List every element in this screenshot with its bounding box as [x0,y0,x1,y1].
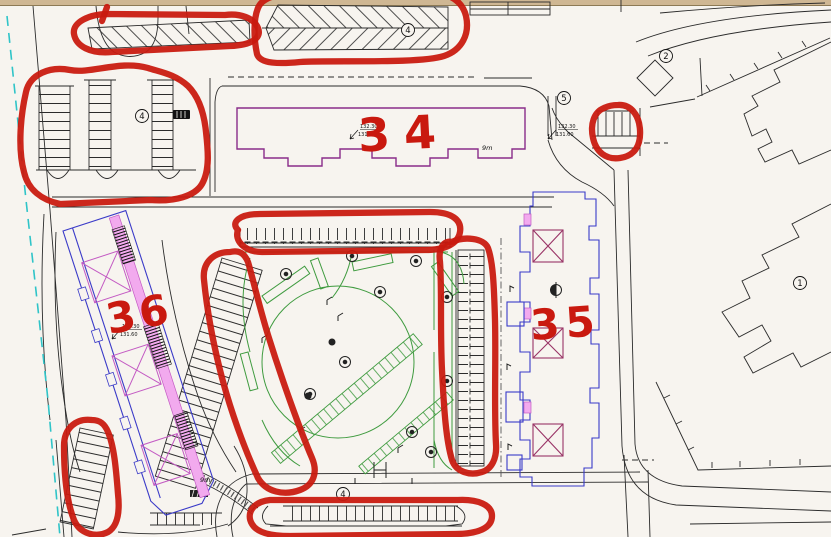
site-plan-canvas: 1 2 4 4 4 5 132.30 131.60 [0,0,831,537]
ref-circle-east-building: 1 [794,277,807,290]
red-loop-east-mini [592,105,640,158]
balcony-notch [120,416,131,430]
balcony-notch [91,329,102,343]
retaining-wall-se [656,382,831,470]
ref-number-label: 2 [663,52,668,62]
building-east [722,42,831,373]
ref-circle-east-road: 5 [558,92,571,105]
road-ne-curves [636,3,831,56]
parking-bay [39,86,70,170]
site-plan-svg: 1 2 4 4 4 5 132.30 131.60 [0,0,831,537]
boardwalk [359,392,454,474]
elevation-lower: 131.60 [556,132,574,138]
stair-core [533,230,563,262]
handwritten-label-35: 35 [529,296,603,350]
road-south-of-courtyard [246,472,648,484]
balcony-notch [134,460,145,474]
ref-circle-north-strip: 4 [402,24,415,37]
handwritten-label-34: 34 [357,104,452,163]
planter [431,262,458,296]
ref-number-label: 1 [797,279,802,289]
dimension-9m-b36: 9m [200,476,210,484]
structure-ne-diamond [637,60,673,96]
handwritten-label-36: 36 [102,284,176,344]
parking-row-center-north [240,228,452,247]
section-marker-icon [551,282,562,298]
parking-row-south [262,506,464,526]
ref-number-label: 5 [561,94,566,104]
ref-number-label: 4 [405,26,410,36]
ref-circle-ne-structure: 2 [660,50,673,63]
ref-number-label: 4 [139,112,144,122]
stair-core [533,424,563,456]
planter [310,258,328,289]
balcony-notch [78,287,89,301]
ref-circle-nw-lot: 4 [136,110,149,123]
wall-mark [524,214,531,225]
elevation-upper: 132.30 [558,124,576,130]
red-stroke-tail [102,7,107,21]
parking-mini-east [592,108,668,156]
frame-top-bar [0,0,831,6]
parking-strip-n-hatched [262,5,448,50]
parking-nw-lot [35,80,190,170]
planter [352,254,393,271]
parking-bay [89,80,111,170]
road-east-inner [628,170,831,492]
parking-strip-center-east [452,250,484,466]
tan-bar [0,0,831,5]
dimension-9m-b34: 9m [482,144,492,152]
retaining-wall-ne [650,38,830,107]
car-icon [173,110,190,119]
wall-mark [524,402,531,413]
planter [240,352,258,391]
parking-bay [152,80,173,170]
balcony-notch [106,372,117,386]
